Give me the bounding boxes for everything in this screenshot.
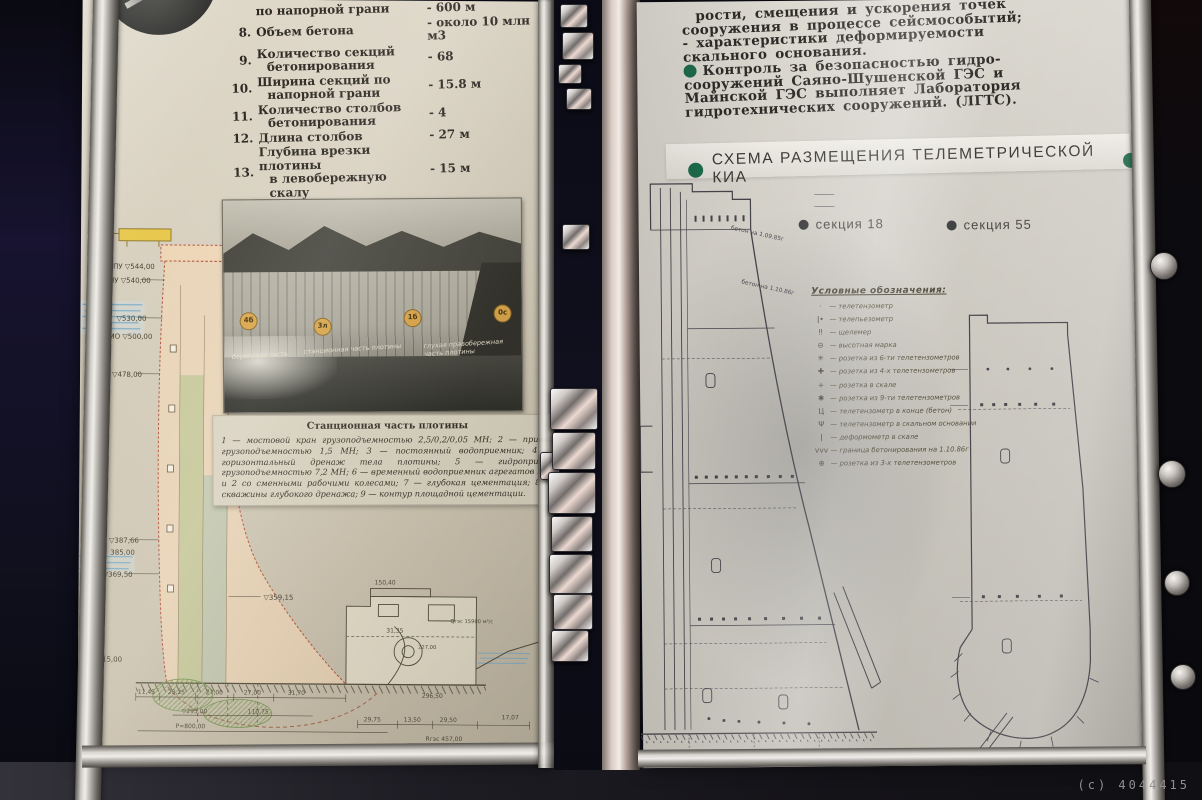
foundation-hatch <box>641 733 877 743</box>
svg-text:▽369,50: ▽369,50 <box>103 571 133 579</box>
tailwater <box>478 653 530 663</box>
svg-text:227,00: 227,00 <box>418 645 436 651</box>
spec-value: - около 10 млн м3 <box>423 14 544 44</box>
svg-text:17,07: 17,07 <box>502 714 519 721</box>
photo-caption: Станционная часть плотины 1 — мостовой к… <box>212 414 562 506</box>
svg-text:▽295,00: ▽295,00 <box>182 708 208 715</box>
spec-value: - 68 <box>424 48 544 64</box>
powerhouse <box>346 588 477 685</box>
svg-text:▽530,00: ▽530,00 <box>117 315 147 323</box>
crest-block <box>161 245 226 261</box>
caption-text: 1 — мостовой кран грузоподъемностью 2,5/… <box>221 434 553 500</box>
intro-paragraph: рости, смещения и ускорения точек сооруж… <box>681 0 1137 120</box>
spec-label-line2: в левобережную скалу <box>259 170 427 200</box>
hinge-clip <box>552 432 596 470</box>
svg-text:▽478,00: ▽478,00 <box>112 371 142 379</box>
instrument-marks <box>693 215 822 727</box>
metal-frame-inner-right <box>602 0 640 770</box>
svg-text:бетон на 1.09.85г: бетон на 1.09.85г <box>730 225 784 243</box>
side-knob <box>1158 460 1186 488</box>
svg-text:385,00: 385,00 <box>110 549 135 557</box>
spec-number <box>227 12 251 13</box>
svg-text:▽387,66: ▽387,66 <box>109 537 139 545</box>
hinge-clip <box>550 388 598 430</box>
spec-label: Объем бетона <box>256 23 354 39</box>
side-knob <box>1150 252 1178 280</box>
metal-frame-bottom-right <box>638 746 1146 768</box>
spec-number: 9. <box>228 55 252 69</box>
svg-text:бетон на 1.10.86г: бетон на 1.10.86г <box>741 279 795 297</box>
hinge-clip <box>553 594 593 630</box>
svg-text:29,50: 29,50 <box>440 717 457 724</box>
photo-marker: 4б <box>240 312 258 330</box>
svg-text:296,50: 296,50 <box>422 693 443 700</box>
hinge-clip <box>549 554 593 594</box>
svg-text:29,75: 29,75 <box>364 716 381 723</box>
spec-number: 13. <box>230 167 254 181</box>
right-page: рости, смещения и ускорения точек сооруж… <box>637 0 1146 768</box>
spec-item: 13. Глубина врезки плотиныв левобережную… <box>230 140 547 201</box>
svg-text:13,50: 13,50 <box>404 717 421 724</box>
svg-text:31,35: 31,35 <box>386 628 403 635</box>
spec-value: - 27 м <box>425 126 545 142</box>
side-knob <box>1170 664 1196 690</box>
svg-text:ФПУ ▽544,00: ФПУ ▽544,00 <box>107 263 155 271</box>
svg-text:Р=800,00: Р=800,00 <box>176 723 206 730</box>
spec-value: - 4 <box>425 104 545 120</box>
caption-title: Станционная часть плотины <box>221 420 553 432</box>
photo-marker: 3л <box>314 318 332 336</box>
svg-text:27,00: 27,00 <box>206 689 223 696</box>
photo-marker: 0с <box>494 304 512 322</box>
hinge-clip <box>558 64 582 84</box>
hinge-clip <box>560 4 588 28</box>
section-55-text: секция 55 <box>964 217 1032 233</box>
spec-label: Глубина врезки плотины <box>259 143 371 173</box>
svg-text:Rгэс 457,00: Rгэс 457,00 <box>425 736 462 743</box>
svg-text:11,45: 11,45 <box>138 689 155 696</box>
svg-text:110,75: 110,75 <box>248 709 269 716</box>
spec-number: 11. <box>229 111 253 125</box>
spec-value: - 15 м <box>426 160 546 176</box>
instrument-marks <box>980 367 1063 598</box>
photo-marker: 1б <box>404 309 422 327</box>
green-bullet-icon <box>683 64 697 78</box>
spec-number: 10. <box>228 83 252 97</box>
teal-column-band <box>202 475 227 683</box>
photo-spillway-splash <box>224 335 338 399</box>
riverbank <box>476 641 540 669</box>
side-knob <box>1164 570 1190 596</box>
spec-number: 8. <box>227 27 251 41</box>
hinge-clip <box>566 88 592 110</box>
photographer-watermark: (с) 4044415 <box>1078 778 1190 792</box>
svg-text:31,70: 31,70 <box>288 690 305 697</box>
hinge-clip <box>548 472 596 514</box>
hinge-clip <box>562 32 594 60</box>
section-55-drawing <box>947 308 1139 762</box>
svg-text:УМО ▽500,00: УМО ▽500,00 <box>104 333 152 341</box>
green-column-band <box>178 375 204 683</box>
svg-text:150,40: 150,40 <box>375 579 396 586</box>
svg-text:23,25: 23,25 <box>168 689 185 696</box>
dark-dot-icon <box>947 220 957 230</box>
svg-text:Qгэс 15900 м³/с: Qгэс 15900 м³/с <box>450 619 493 625</box>
spec-label: по напорной грани <box>256 1 390 18</box>
hinge-clip <box>551 630 589 662</box>
spec-number: 12. <box>229 132 253 146</box>
section-18-drawing: бетон на 1.09.85г бетон на 1.10.86г <box>634 172 911 769</box>
hinge-clip <box>562 224 590 250</box>
hinge-clip <box>551 516 593 552</box>
photo-of-exhibit-album: по напорной грани - 600 м 8. Объем бетон… <box>0 0 1202 800</box>
spillway-streak <box>124 0 157 9</box>
metal-frame-bottom-left <box>82 742 560 767</box>
dam-photo: 4б 3л 1б 0с береговая часть станционная … <box>222 197 523 413</box>
spec-value: - 15.8 м <box>424 76 544 92</box>
svg-text:27,00: 27,00 <box>244 690 261 697</box>
spec-label: Длина столбов <box>258 129 363 145</box>
svg-text:▽359,15: ▽359,15 <box>263 594 293 602</box>
left-page: по напорной грани - 600 м 8. Объем бетон… <box>77 0 550 764</box>
section-label-55: секция 55 <box>947 217 1032 233</box>
concrete-stage-annotations: бетон на 1.09.85г бетон на 1.10.86г <box>730 225 795 298</box>
